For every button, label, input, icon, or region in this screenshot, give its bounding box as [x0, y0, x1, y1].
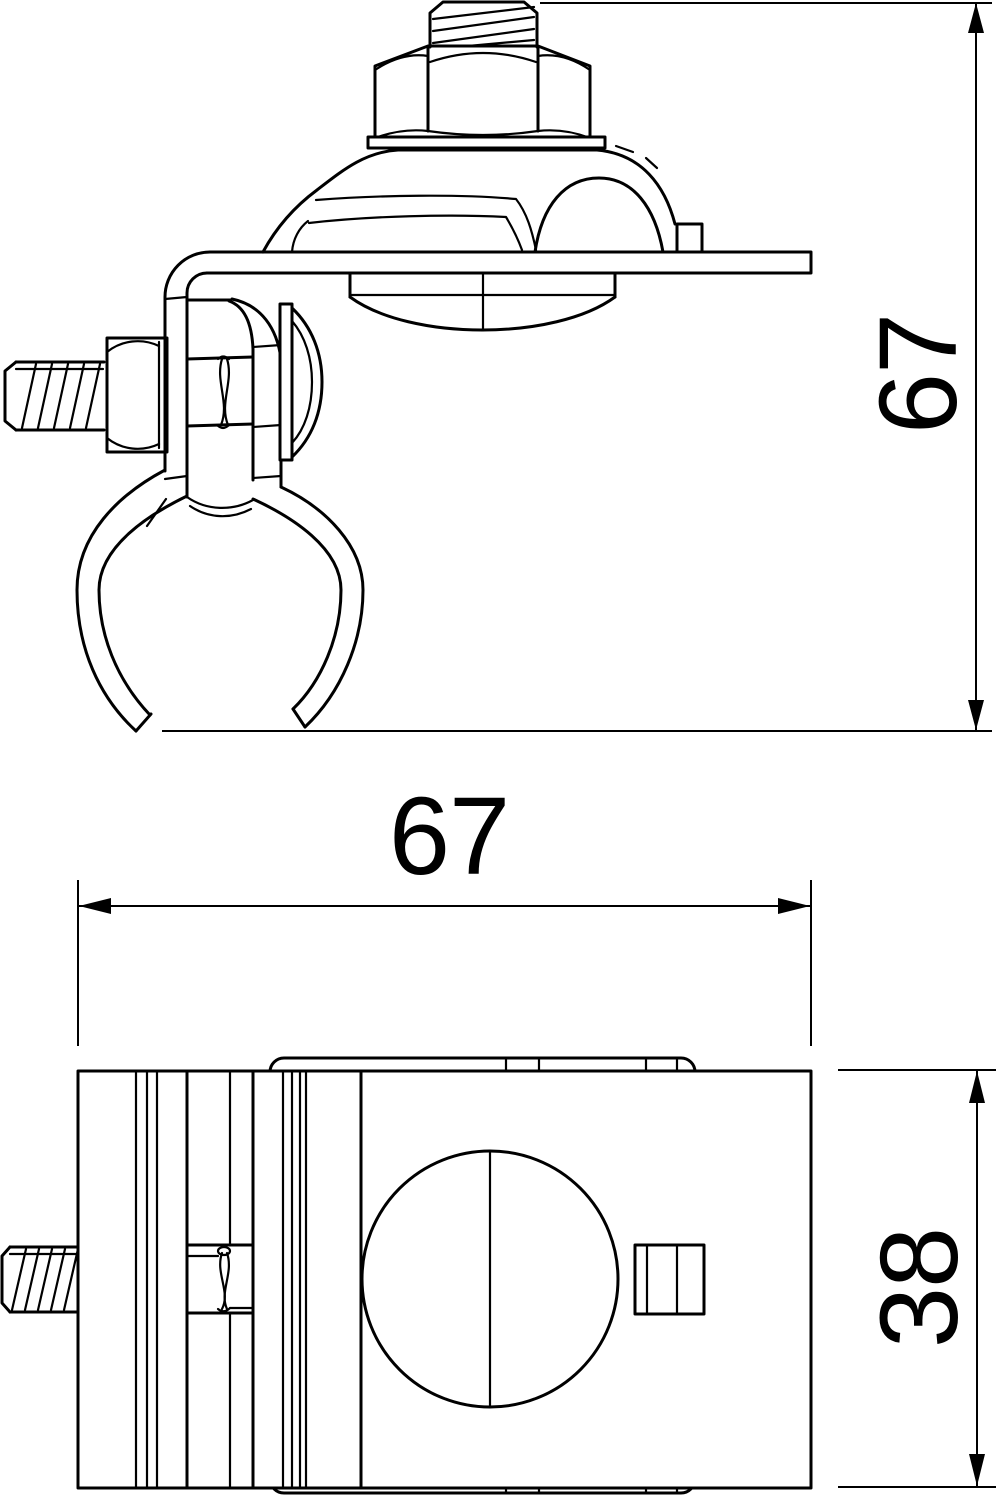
drawing-canvas: 67: [0, 0, 999, 1500]
washer: [368, 137, 605, 148]
side-height-label: 67: [857, 314, 980, 434]
dome-screw: [280, 304, 322, 460]
technical-drawing: 67: [0, 0, 999, 1500]
mounting-plate: [165, 252, 811, 497]
arrow-down-icon: [968, 700, 984, 730]
front-strap: [187, 299, 281, 487]
front-height-label: 38: [858, 1228, 981, 1348]
pipe-clamp-ring: [77, 470, 363, 731]
side-bolt: [5, 338, 167, 452]
carriage-bolt-head: [350, 273, 615, 330]
front-width-dimension: 67: [78, 775, 811, 1046]
arrow-up-icon: [969, 1071, 985, 1103]
clamp-screw: [187, 357, 253, 429]
arrow-left-icon: [79, 898, 111, 914]
hex-nut: [375, 46, 590, 138]
side-view: [5, 2, 811, 731]
arrow-down-icon: [969, 1454, 985, 1486]
front-view: [2, 1058, 811, 1493]
saddle-clamp: [263, 146, 702, 252]
front-width-label: 67: [389, 775, 509, 898]
side-bolt-front: [2, 1247, 78, 1312]
arrow-right-icon: [778, 898, 810, 914]
front-height-dimension: 38: [838, 1070, 996, 1487]
threaded-stud: [430, 2, 537, 47]
arrow-up-icon: [968, 3, 984, 33]
